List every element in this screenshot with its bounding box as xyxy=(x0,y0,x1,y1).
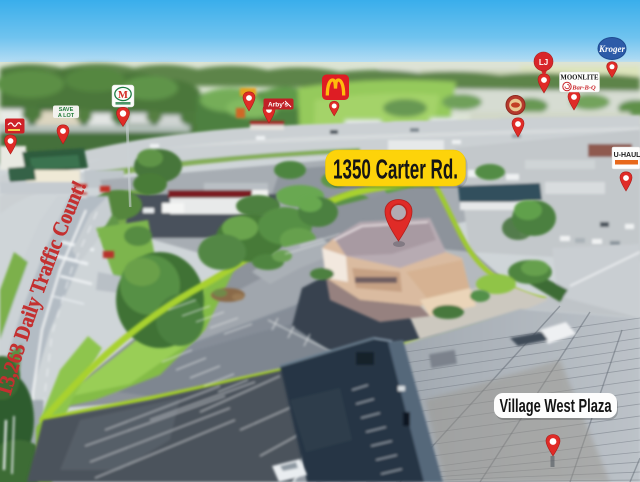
svg-text:Village West Plaza: Village West Plaza xyxy=(500,396,613,416)
svg-text:Kroger: Kroger xyxy=(598,44,626,54)
svg-text:LJ: LJ xyxy=(539,58,548,67)
svg-text:A LOT: A LOT xyxy=(58,113,75,119)
svg-text:U-HAUL: U-HAUL xyxy=(614,152,640,159)
svg-text:M: M xyxy=(118,90,128,101)
svg-text:Arby's: Arby's xyxy=(268,102,288,109)
svg-text:Bar-B-Q: Bar-B-Q xyxy=(571,85,596,92)
svg-text:1350 Carter Rd.: 1350 Carter Rd. xyxy=(333,154,458,185)
svg-text:MOONLITE: MOONLITE xyxy=(560,75,599,82)
